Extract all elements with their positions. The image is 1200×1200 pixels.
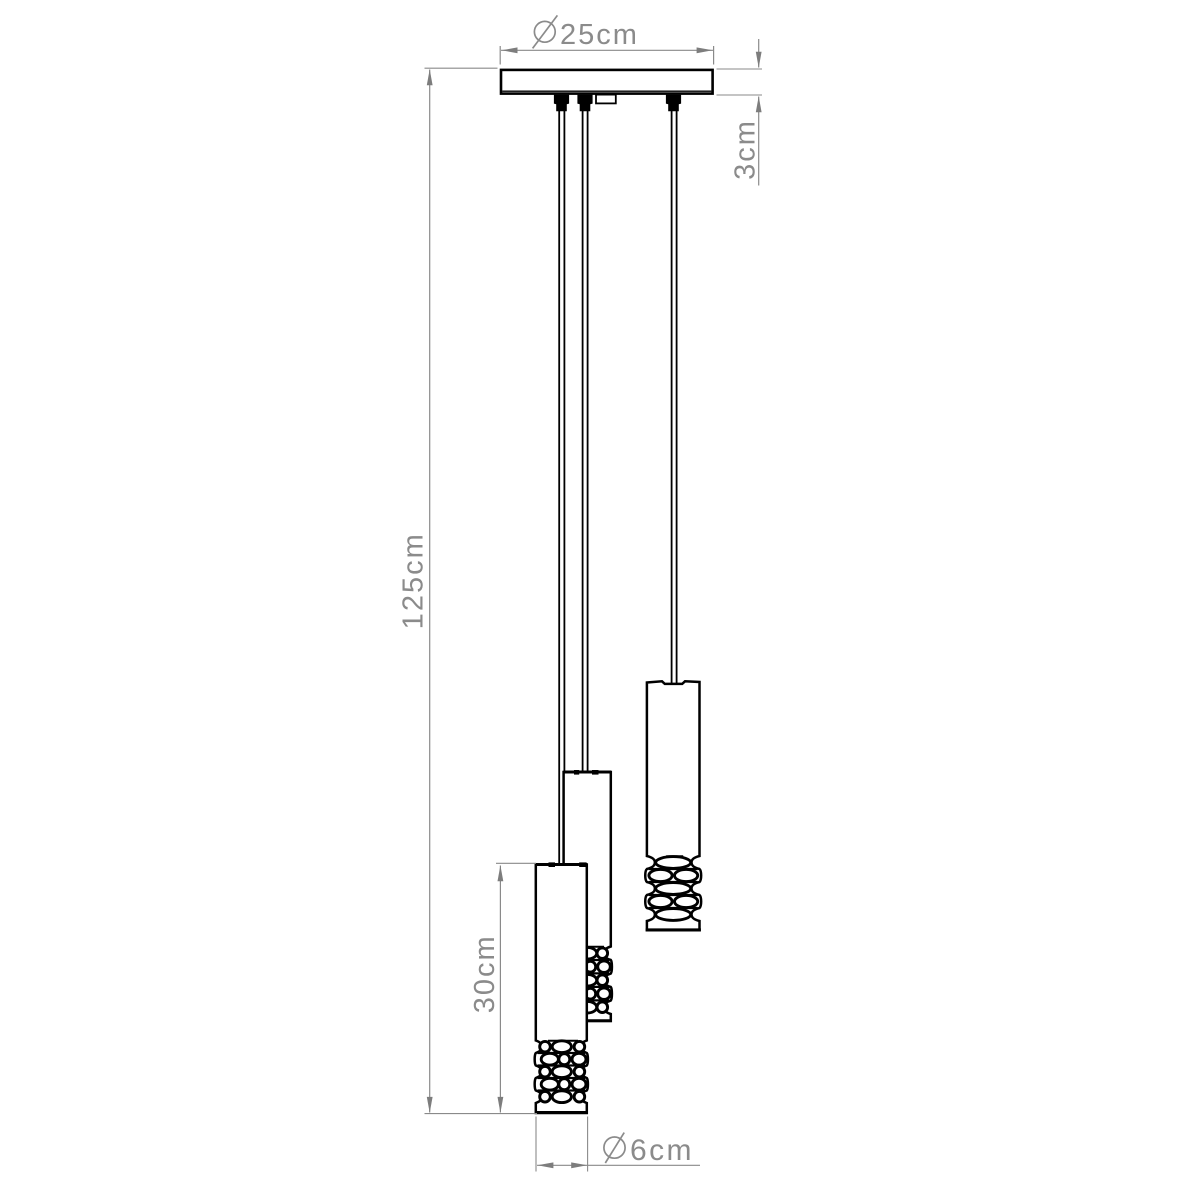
svg-text:30cm: 30cm bbox=[469, 934, 501, 1013]
svg-text:6cm: 6cm bbox=[630, 1134, 694, 1167]
svg-text:3cm: 3cm bbox=[730, 119, 762, 180]
svg-text:25cm: 25cm bbox=[560, 19, 639, 51]
svg-text:125cm: 125cm bbox=[398, 532, 430, 629]
